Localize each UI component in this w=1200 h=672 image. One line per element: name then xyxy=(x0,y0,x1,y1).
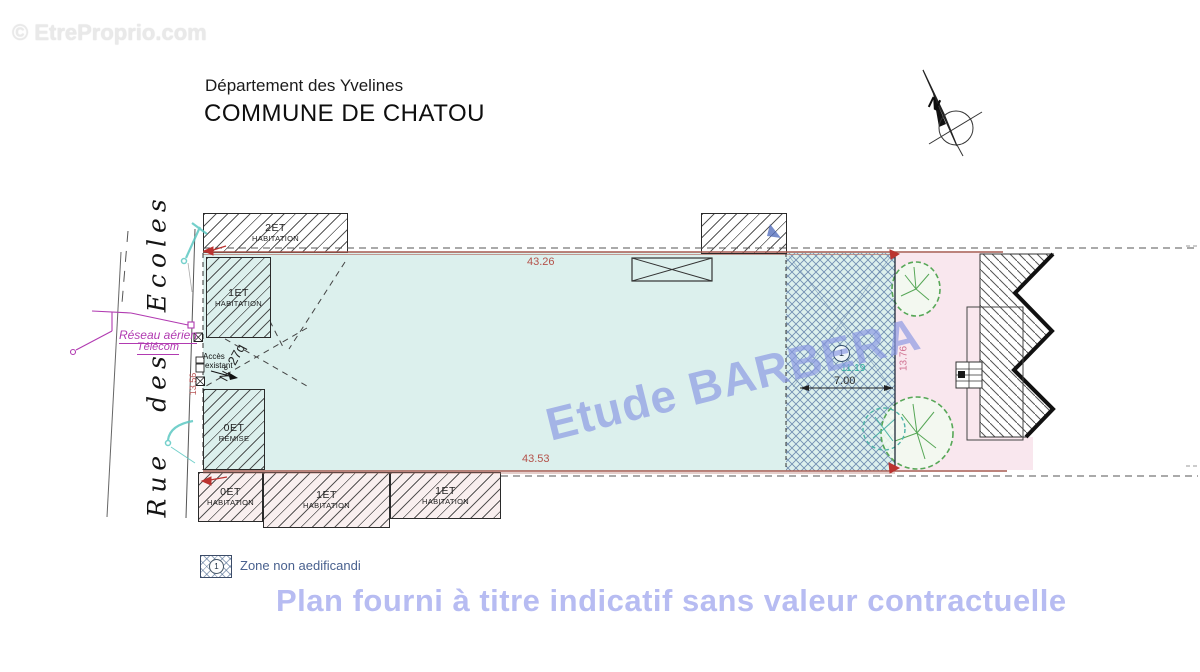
dimension-north: 43.26 xyxy=(527,256,555,268)
dimension-south: 43.53 xyxy=(522,453,550,465)
disclaimer-text: Plan fourni à titre indicatif sans valeu… xyxy=(276,583,1067,619)
telecom-network-label-line1: Réseau aérien xyxy=(118,328,198,342)
department-title: Département des Yvelines xyxy=(205,76,403,96)
legend-marker-badge: 1 xyxy=(209,559,224,574)
legend-swatch: 1 xyxy=(200,555,232,578)
site-watermark: © EtreProprio.com xyxy=(12,20,207,46)
street-name-label: Rue des Ecoles xyxy=(143,218,172,518)
access-label-line1: Accès xyxy=(203,352,225,361)
legend-label: Zone non aedificandi xyxy=(240,558,361,573)
commune-title: COMMUNE DE CHATOU xyxy=(204,100,485,128)
blue-roof-mark xyxy=(767,224,781,238)
telecom-network-label-line2: Télécom xyxy=(118,341,198,353)
dimension-west: 13.56 xyxy=(188,364,198,404)
site-plan-page: 2ET HABITATION 1ET HABITATION 0ET REMISE… xyxy=(0,0,1200,672)
